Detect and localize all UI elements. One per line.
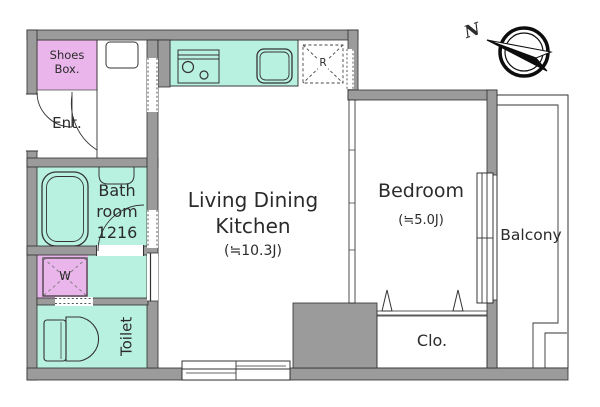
north-compass-icon — [487, 28, 551, 76]
bedroom-area-label: (≒5.0J) — [361, 213, 481, 229]
window-ldk — [182, 361, 290, 380]
kitchen-counter — [170, 40, 298, 86]
ldk-label: Living Dining Kitchen — [163, 187, 343, 239]
ldk-area-label: (≒10.3J) — [193, 243, 313, 261]
toilet-label: Toilet — [97, 306, 157, 366]
closet-label: Clo. — [377, 331, 487, 351]
washroom-door — [147, 253, 158, 301]
toilet-door — [55, 297, 93, 306]
floor-plan: Shoes Box. Ent. Bath room 1216 W Toilet … — [0, 0, 600, 407]
washroom-floor — [88, 255, 148, 298]
entrance-label: Ent. — [37, 114, 97, 133]
shoes-box-label: Shoes Box. — [39, 48, 95, 76]
refrigerator-label: R — [311, 57, 335, 70]
ldk-bedroom-partition — [349, 100, 355, 303]
washing-machine-label: W — [43, 269, 87, 284]
balcony-label: Balcony — [499, 226, 563, 245]
pipe-space — [293, 303, 377, 368]
bedroom-floor — [355, 100, 487, 316]
bedroom-label: Bedroom — [356, 180, 486, 204]
bathroom-label: Bath room 1216 — [84, 180, 150, 243]
